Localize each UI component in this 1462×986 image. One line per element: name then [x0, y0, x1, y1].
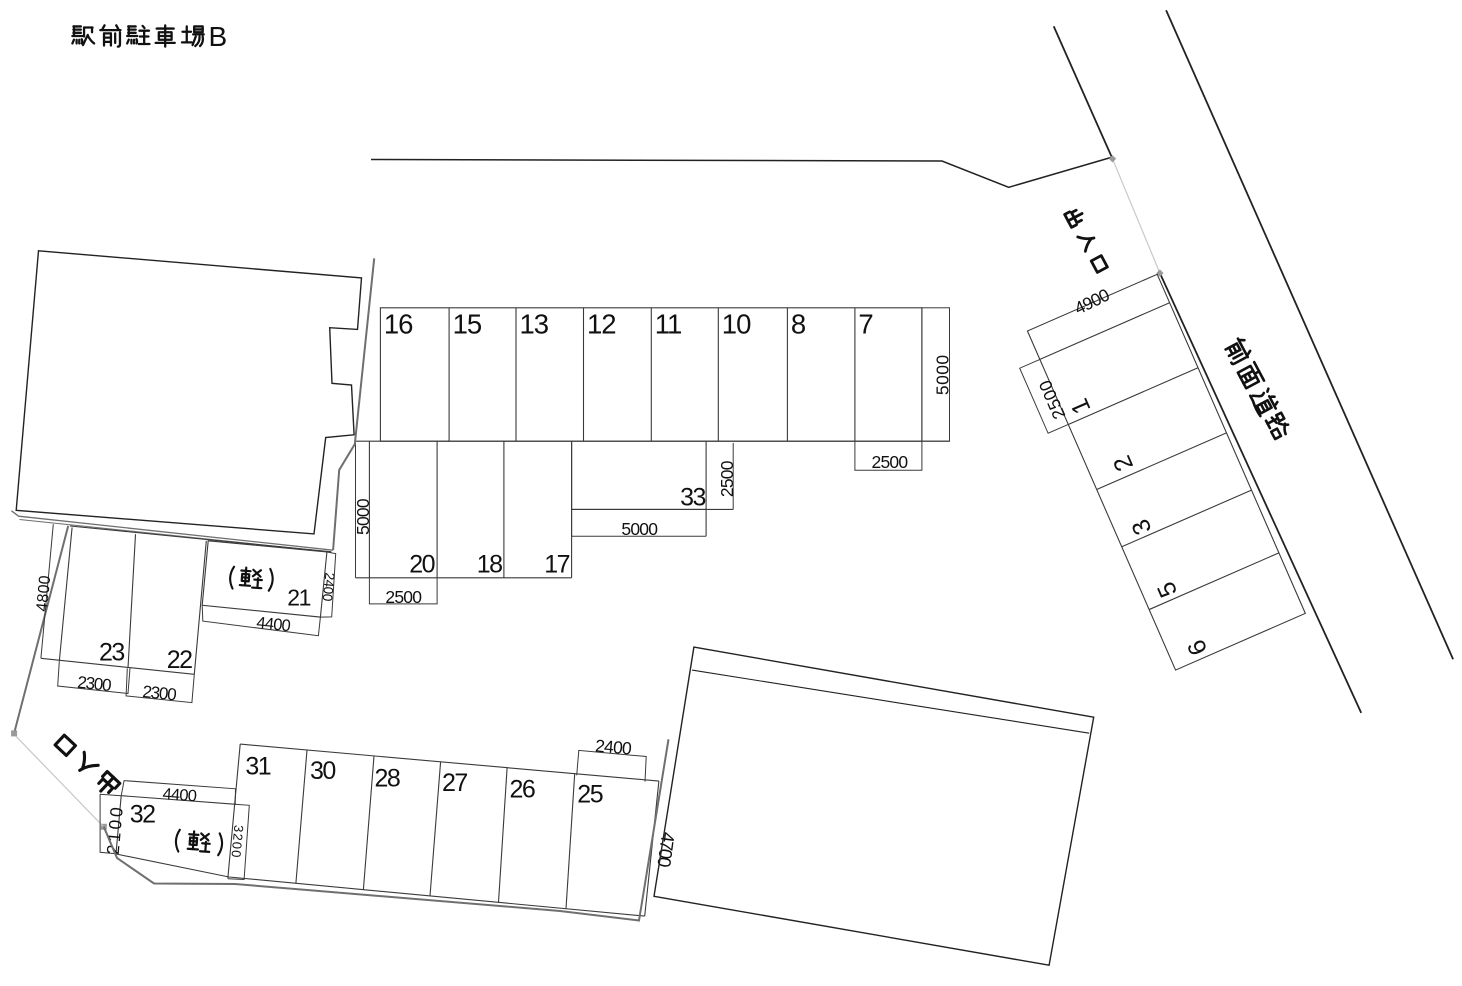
svg-text:4400: 4400	[256, 614, 292, 635]
svg-text:16: 16	[384, 309, 413, 340]
svg-text:2500: 2500	[872, 452, 909, 472]
svg-text:31: 31	[245, 753, 270, 781]
svg-text:27: 27	[442, 769, 467, 797]
svg-text:4800: 4800	[34, 575, 54, 613]
svg-text:15: 15	[453, 309, 482, 340]
svg-text:21: 21	[287, 584, 310, 610]
svg-text:3: 3	[1127, 516, 1158, 539]
svg-text:10: 10	[722, 309, 751, 340]
svg-text:23: 23	[99, 639, 124, 667]
svg-text:2500: 2500	[385, 587, 422, 607]
svg-text:11: 11	[655, 309, 682, 340]
svg-text:5000: 5000	[353, 498, 373, 535]
svg-text:4900: 4900	[1071, 284, 1113, 318]
svg-text:13: 13	[520, 309, 549, 340]
svg-text:18: 18	[477, 550, 502, 578]
svg-text:5000: 5000	[621, 519, 658, 539]
svg-text:B: B	[209, 21, 228, 52]
svg-text:26: 26	[510, 775, 535, 803]
svg-text:2300: 2300	[76, 673, 112, 695]
svg-text:32: 32	[130, 801, 155, 829]
svg-text:4400: 4400	[162, 785, 197, 805]
svg-text:2500: 2500	[717, 460, 737, 497]
svg-text:2100: 2100	[103, 804, 127, 856]
svg-text:28: 28	[375, 764, 400, 792]
svg-text:2300: 2300	[142, 682, 178, 704]
svg-text:4700: 4700	[653, 831, 679, 869]
svg-text:22: 22	[167, 646, 192, 674]
svg-text:17: 17	[544, 550, 569, 578]
svg-text:7: 7	[858, 309, 872, 340]
svg-text:8: 8	[791, 309, 806, 340]
svg-text:30: 30	[310, 757, 335, 785]
svg-text:20: 20	[409, 550, 434, 578]
svg-text:33: 33	[680, 484, 705, 512]
svg-text:5000: 5000	[932, 355, 952, 396]
svg-text:2400: 2400	[320, 572, 338, 602]
svg-text:5: 5	[1152, 578, 1183, 601]
svg-text:12: 12	[587, 309, 616, 340]
svg-text:2: 2	[1108, 452, 1139, 475]
svg-text:25: 25	[577, 781, 602, 809]
svg-text:2400: 2400	[594, 736, 632, 759]
